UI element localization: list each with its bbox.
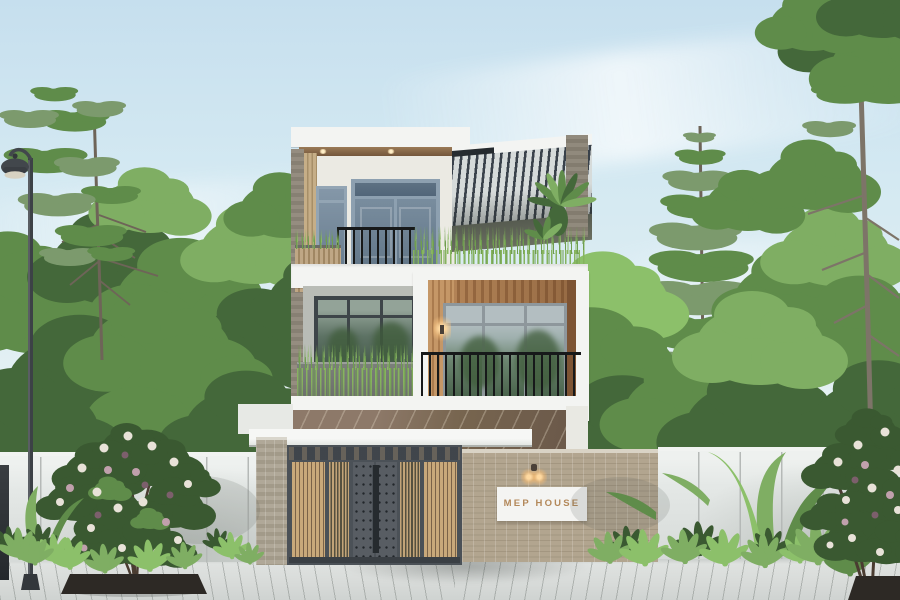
planter-bed xyxy=(61,574,207,594)
rooftop-palm-plant xyxy=(523,170,597,242)
architectural-render-scene: MEP HOUSE xyxy=(0,0,900,600)
planter-bed xyxy=(848,576,900,600)
flower-bush-left xyxy=(35,423,221,594)
tree-shadow xyxy=(570,477,670,533)
foreground-plants xyxy=(0,0,900,600)
